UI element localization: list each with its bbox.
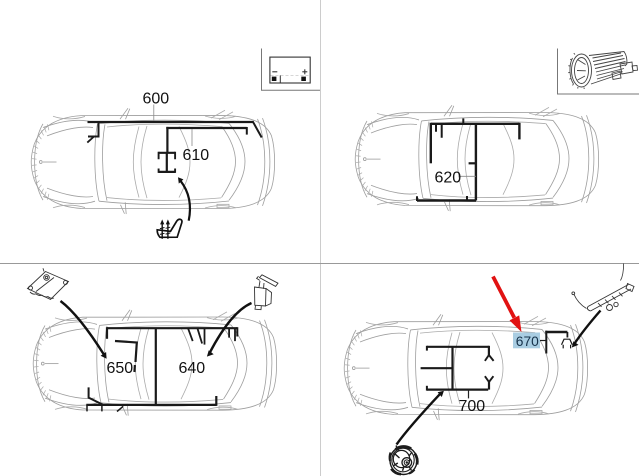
svg-text:620: 620 bbox=[435, 169, 462, 186]
svg-text:640: 640 bbox=[179, 360, 206, 377]
svg-text:700: 700 bbox=[459, 398, 486, 415]
svg-text:600: 600 bbox=[143, 91, 170, 108]
svg-text:650: 650 bbox=[107, 360, 134, 377]
svg-text:610: 610 bbox=[183, 147, 210, 164]
svg-text:670: 670 bbox=[516, 334, 539, 349]
